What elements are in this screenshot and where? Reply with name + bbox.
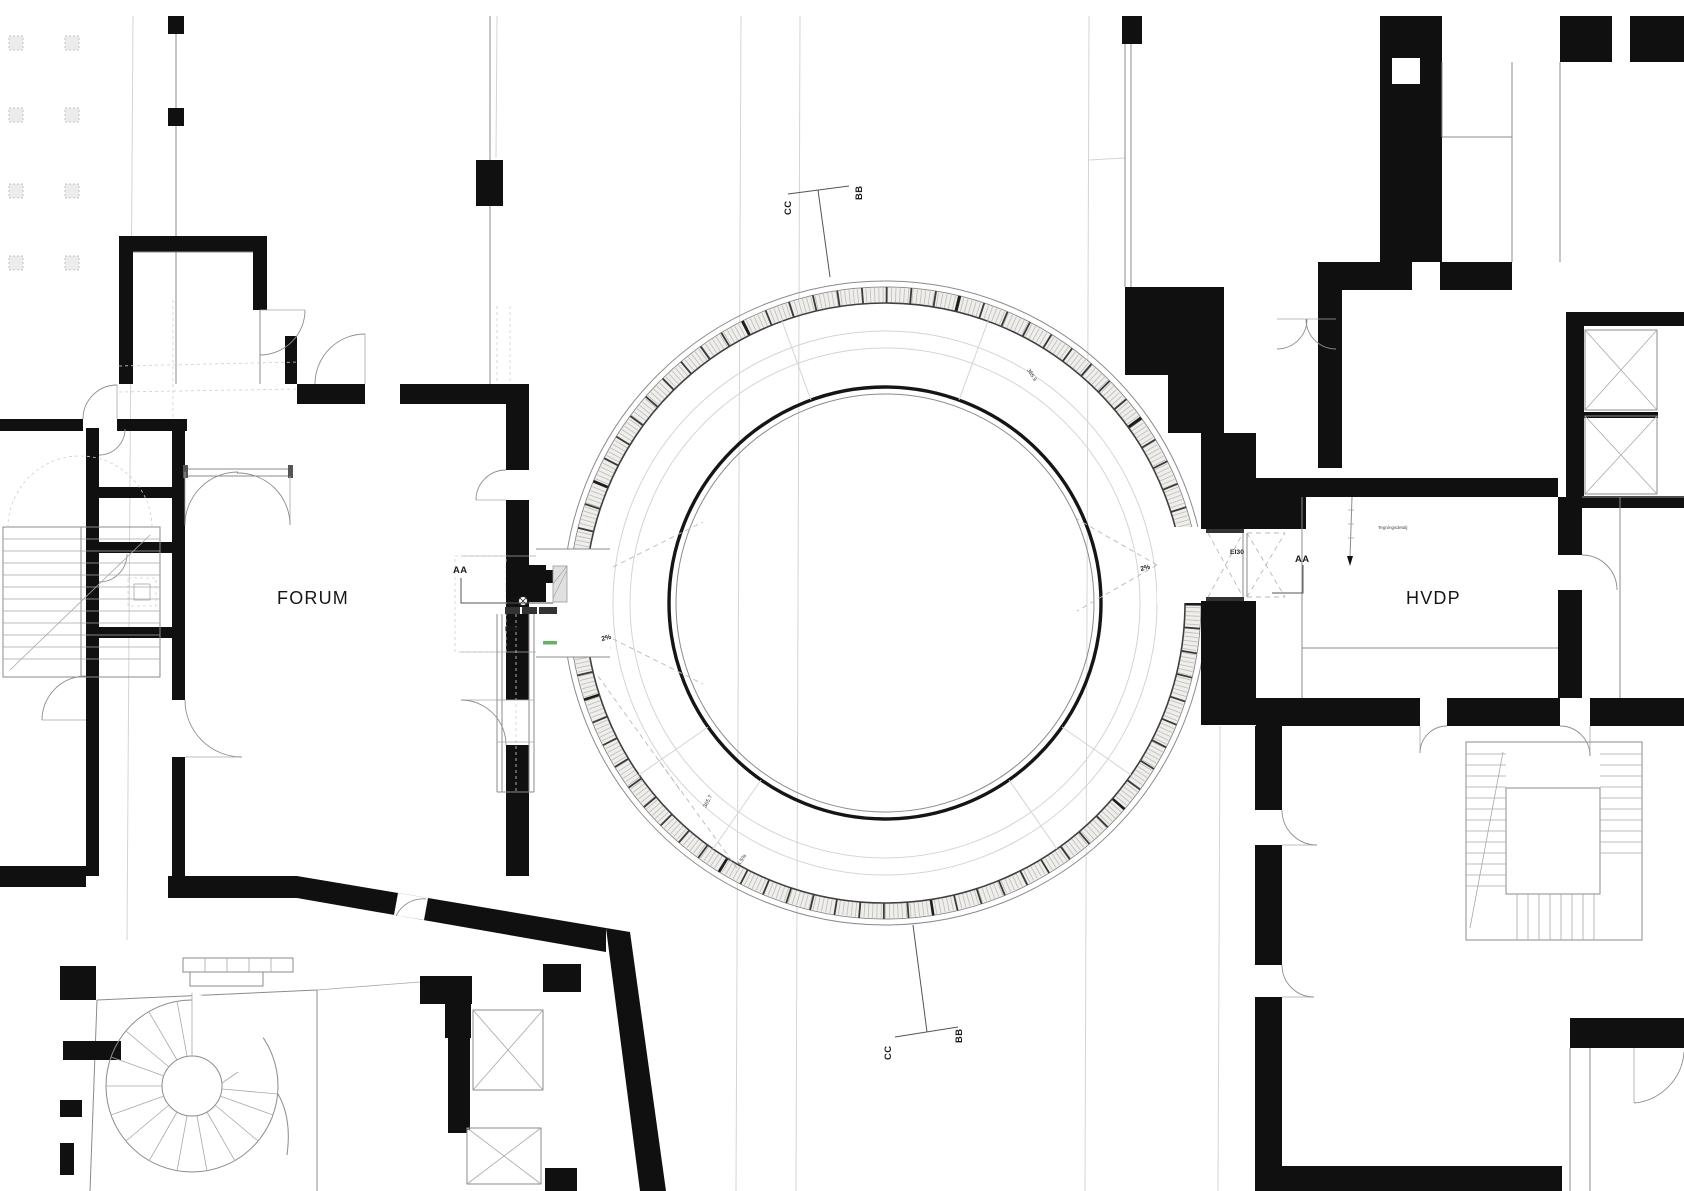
elevator-shafts-left [420, 964, 581, 1191]
hvdp-building [1122, 16, 1684, 1191]
section-line-bottom: CC BB [883, 925, 965, 1060]
forum-room-label: FORUM [277, 588, 349, 608]
inner-ring-wall [669, 387, 1101, 819]
section-label-bb-top: BB [854, 185, 865, 200]
connector-right [1206, 529, 1285, 601]
section-label-cc-top: CC [783, 200, 794, 215]
section-label-cc-bottom: CC [883, 1045, 894, 1060]
section-line-top: CC BB [783, 185, 865, 277]
floor-plan-canvas: CC BB CC BB AA AA FORUM HVDP EI30 EI30 2… [0, 0, 1684, 1191]
spiral-stair [106, 993, 292, 1172]
spiral-stair-block [60, 958, 581, 1191]
slope-label-right: 2% [1140, 564, 1151, 573]
hvdp-room-label: HVDP [1406, 588, 1461, 608]
section-label-aa-right: AA [1295, 554, 1310, 565]
stair-right [1466, 742, 1642, 940]
slope-label-left: 2% [601, 634, 612, 643]
green-note-mark [543, 641, 557, 645]
elevator-shafts-right [1566, 312, 1684, 508]
ring-level-note-3: 365.9 [1025, 368, 1037, 383]
ring-level-note-1: 365.7 [702, 794, 714, 809]
section-label-aa-left: AA [453, 565, 468, 576]
ring-bridge [537, 281, 1207, 925]
section-label-bb-bottom: BB [954, 1028, 965, 1043]
fire-rating-right: EI30 [1230, 549, 1244, 556]
ring-slope-note-2: 4.5% [737, 853, 749, 867]
column-grid [9, 36, 79, 270]
section-line-aa-right: AA [1272, 554, 1310, 593]
fire-rating-left: EI30 [505, 626, 519, 633]
plan-labels: FORUM HVDP EI30 EI30 2% 2% 365.7 4.5% 36… [277, 368, 1461, 867]
detail-note: Tegningsdetalj [1378, 525, 1407, 530]
ring-opening-right [1157, 527, 1213, 603]
